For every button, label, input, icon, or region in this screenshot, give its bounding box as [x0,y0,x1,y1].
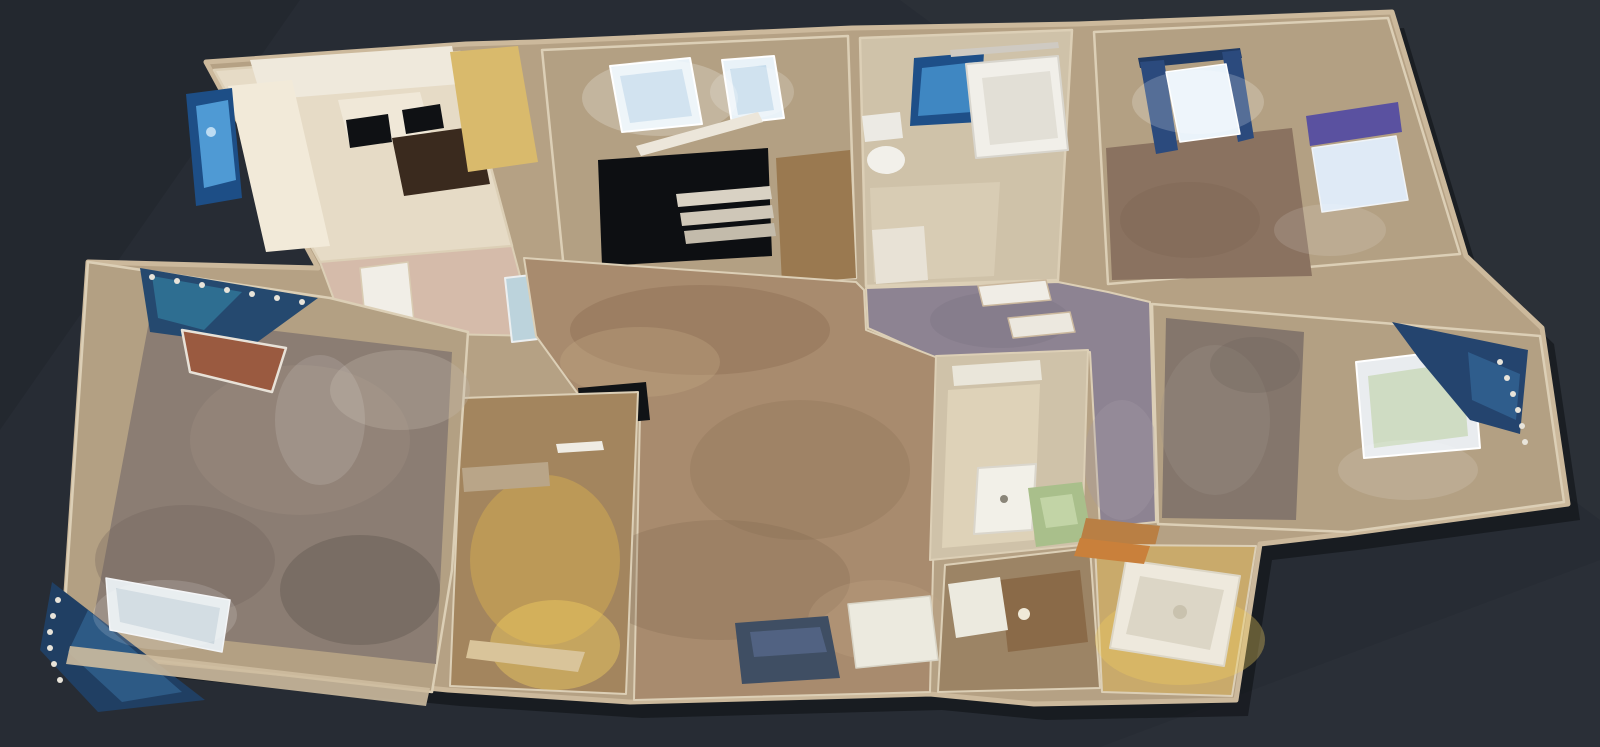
toilet-tank [862,112,903,142]
green-plant-highlight [1040,494,1078,528]
kitchen-scan-hole [346,114,392,148]
curtain-grommet [57,677,63,683]
bright-window-glow [1132,70,1264,134]
curtain-grommet [199,282,205,288]
right-carpet-mottle-2 [1210,337,1300,393]
curtain-grommet [55,597,61,603]
curtain-grommet [249,291,255,297]
toilet-bowl [867,146,905,174]
side-window-glow [1274,204,1386,256]
white-storage-bin [948,577,1008,638]
curtain-grommet [1522,439,1528,445]
window-blinds-glow [93,580,237,650]
stair-landing-floor [776,150,856,284]
dollhouse-3d-viewport[interactable] [0,0,1600,747]
curtain-grommet [47,629,53,635]
curtain-grommet [224,287,230,293]
door-knob [1018,608,1030,620]
beanbag-highlight [750,627,827,657]
curtain-grommet [1519,423,1525,429]
shower-drain [1000,495,1008,503]
kitchen-window-glint [206,127,216,137]
bedroom-window-glow [275,355,365,485]
curtain-grommet [174,278,180,284]
bathtub-basin [982,71,1058,145]
closet-door-panel [1000,570,1088,652]
laundry-basket [848,596,938,668]
curtain-grommet [50,613,56,619]
side-window [1312,136,1408,212]
hallway-carpet-mottle-2 [1084,400,1160,520]
bathroom-vanity [872,226,928,284]
curtain-grommet [1510,391,1516,397]
curtain-grommet [51,661,57,667]
curtain-grommet [149,274,155,280]
carpet-mottle-2 [690,400,910,540]
top-right-carpet-mottle [1120,182,1260,258]
stair-window-glow-2 [710,66,794,118]
wall-shadow-smudge [280,535,440,645]
curtain-grommet [1515,407,1521,413]
curtain-grommet [1497,359,1503,365]
curtain-grommet [299,299,305,305]
stairwell-void [598,148,772,266]
dollhouse-scene-canvas[interactable] [0,0,1600,747]
garden-window-glow [1338,440,1478,500]
curtain-grommet [1504,375,1510,381]
curtain-grommet [47,645,53,651]
tub-faucet [1173,605,1187,619]
curtain-grommet [274,295,280,301]
